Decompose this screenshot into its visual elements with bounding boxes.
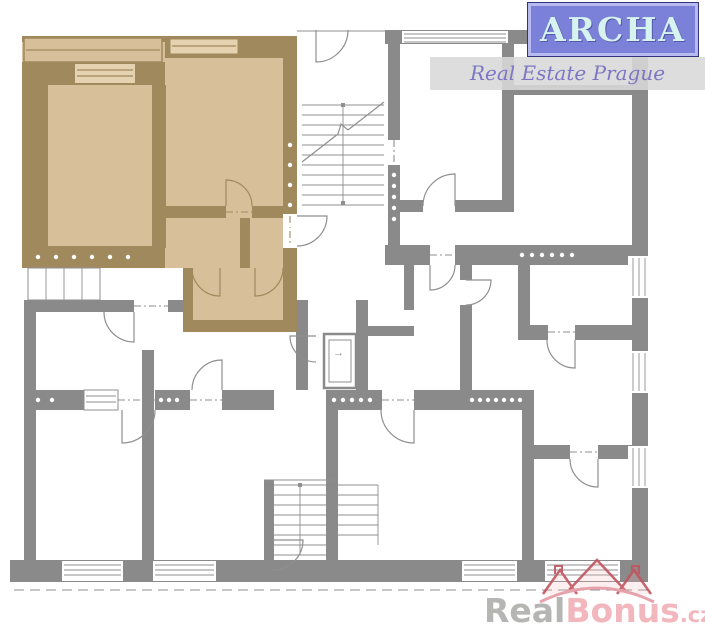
logo-subtitle: Real Estate Prague (430, 57, 705, 89)
realbonus-watermark: RealBonus.cz (484, 594, 704, 627)
archa-logo: ARCHA (527, 2, 699, 57)
watermark-bonus: Bonus (565, 591, 679, 630)
floor-plan: → (0, 0, 705, 634)
watermark-cz: .cz (680, 603, 705, 627)
elevator: → (324, 334, 356, 388)
elevator-arrow-icon: → (333, 347, 344, 359)
logo-title: ARCHA (540, 10, 686, 49)
floor-plan-page: → (0, 0, 705, 634)
watermark-real: Real (484, 591, 565, 630)
window (75, 64, 135, 83)
